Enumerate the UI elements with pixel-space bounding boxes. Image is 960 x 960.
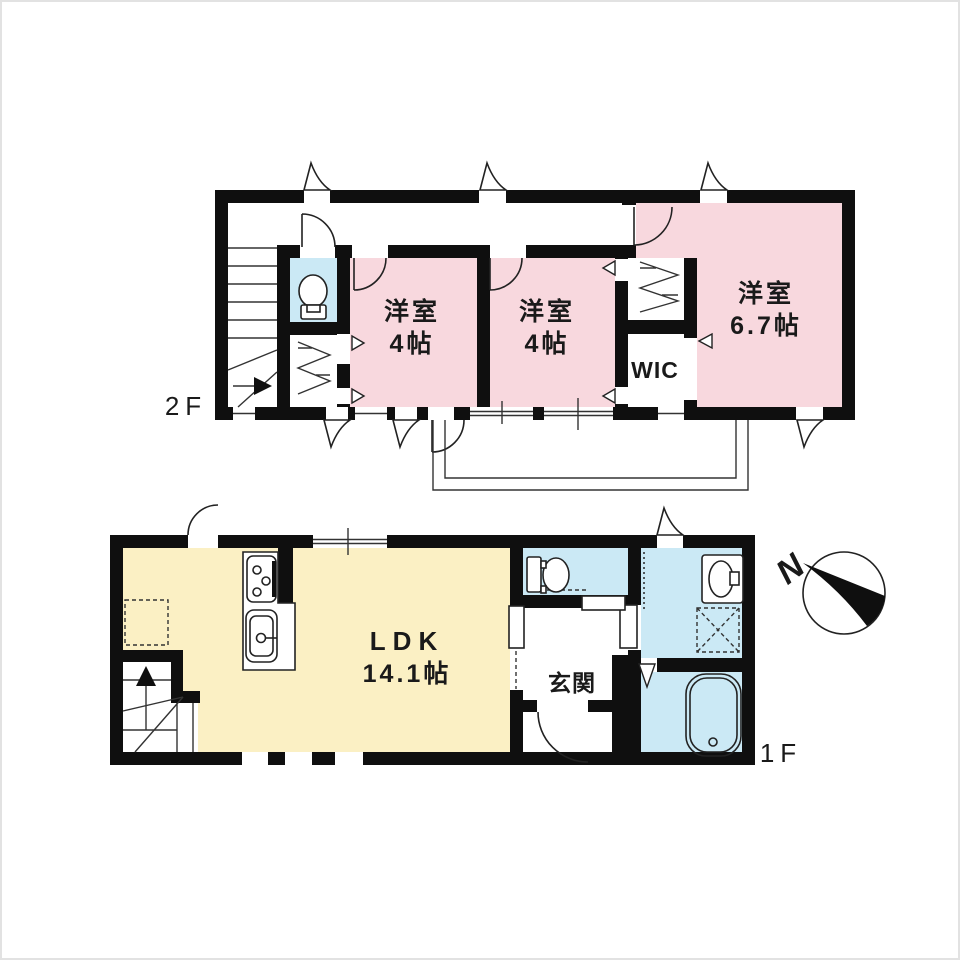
bedroom-3-size: 6.7帖 bbox=[730, 312, 802, 340]
ldk-size: 14.1帖 bbox=[363, 660, 452, 688]
kitchen-sink-icon bbox=[246, 610, 277, 662]
casement-window-icon bbox=[324, 420, 350, 447]
toilet-icon-1f bbox=[527, 557, 569, 593]
vanity-sink-icon bbox=[702, 555, 743, 603]
genkan-label: 玄関 bbox=[548, 670, 596, 696]
stove-icon bbox=[247, 556, 276, 602]
bedroom-1-size: 4帖 bbox=[390, 330, 435, 358]
floor-2f-plan: 洋室 4帖 洋室 4帖 洋室 6.7帖 WIC 2F bbox=[165, 163, 855, 490]
ldk-back-door bbox=[188, 505, 218, 535]
balcony-window-swing bbox=[432, 420, 464, 452]
floorplan-canvas: 洋室 4帖 洋室 4帖 洋室 6.7帖 WIC 2F bbox=[0, 0, 960, 960]
north-arrow-icon bbox=[803, 563, 885, 626]
casement-window-icon bbox=[797, 420, 823, 447]
hall-washroom-door-leaf bbox=[620, 605, 637, 648]
casement-window-icon bbox=[657, 508, 683, 535]
floor-1f-plan: LDK 14.1帖 玄関 1F bbox=[110, 505, 802, 768]
bedroom-1-name: 洋室 bbox=[384, 297, 440, 326]
north-label: N bbox=[769, 546, 813, 592]
hall-ldk-door-leaf bbox=[509, 606, 524, 648]
casement-window-icon bbox=[701, 163, 727, 190]
casement-window-icon bbox=[304, 163, 330, 190]
floorplan-drawing: 洋室 4帖 洋室 4帖 洋室 6.7帖 WIC 2F bbox=[0, 0, 960, 960]
bedroom-2-name: 洋室 bbox=[519, 297, 575, 326]
floor-1f-label: 1F bbox=[760, 738, 802, 768]
balcony bbox=[433, 420, 748, 490]
bedroom-3-name: 洋室 bbox=[738, 279, 794, 308]
casement-window-icon bbox=[393, 420, 419, 447]
compass: N bbox=[769, 546, 885, 634]
bedroom-2-size: 4帖 bbox=[525, 330, 570, 358]
ldk-name: LDK bbox=[370, 626, 444, 656]
window-mullion bbox=[533, 407, 544, 420]
wic-label: WIC bbox=[631, 357, 679, 383]
floor-2f-label: 2F bbox=[165, 391, 207, 421]
toilet-icon-2f bbox=[299, 275, 327, 319]
toilet-1f-door-leaf bbox=[582, 596, 625, 610]
casement-window-icon bbox=[480, 163, 506, 190]
